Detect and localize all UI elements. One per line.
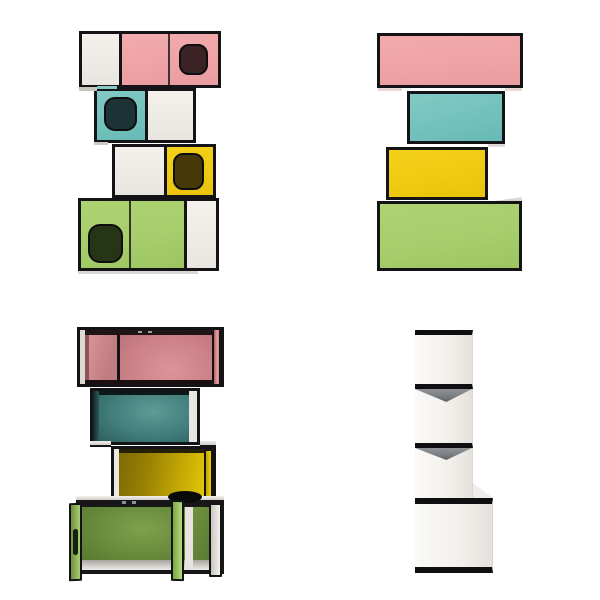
interior-ceiling (99, 391, 189, 395)
entry-hole-green (88, 224, 123, 263)
open-door-pink (212, 330, 221, 384)
open-tier-pink (77, 327, 224, 387)
open-door-yellow (204, 449, 213, 503)
entry-hole-pink (179, 44, 208, 75)
back-tier-green (377, 201, 522, 271)
depth-sliver (94, 142, 108, 145)
panel-white (187, 201, 216, 268)
front-tier-pink (79, 31, 221, 88)
panel-white (148, 91, 193, 140)
door-seam (168, 34, 170, 85)
entry-hole-teal (104, 97, 137, 131)
back-tier-teal (407, 91, 505, 144)
product-sheet (0, 0, 600, 600)
interior-floor-white (79, 560, 221, 570)
interior-yellow (119, 449, 204, 497)
entry-hole-yellow (173, 153, 204, 190)
front-tier-yellow (112, 144, 216, 198)
open-tier-green (76, 496, 224, 574)
underside-shadow-wedge (415, 448, 472, 460)
step-sliver (90, 441, 111, 447)
interior-ceiling (119, 449, 204, 453)
interior-pink-left (85, 330, 117, 384)
bottom-box-top-face (473, 483, 493, 498)
hinge (122, 501, 126, 504)
front-tier-green (78, 198, 219, 271)
side-post-white (185, 507, 193, 570)
side-box-2 (415, 389, 473, 448)
bottom-band (76, 570, 224, 574)
side-box-1 (415, 330, 473, 389)
interior-pink-main (120, 330, 212, 384)
open-tier-yellow (111, 446, 216, 500)
open-door-green-mid (171, 500, 184, 581)
top-band (76, 500, 224, 507)
back-tier-yellow (386, 147, 488, 200)
front-tier-teal (94, 88, 196, 143)
door-hole (73, 529, 78, 555)
open-door-white-right (209, 503, 222, 577)
depth-sliver (79, 87, 97, 91)
side-box-3 (415, 448, 473, 498)
teal-top-sliver (97, 86, 117, 89)
open-door-edge (85, 330, 89, 384)
back-tier-pink (377, 33, 523, 88)
panel-white (82, 34, 119, 85)
hinge (148, 331, 152, 333)
side-box-bottom (415, 498, 493, 573)
side-post-white (189, 391, 197, 442)
interior-floor-edge (85, 380, 212, 384)
ground-shadow (78, 271, 198, 274)
open-door-green-left (69, 503, 82, 581)
open-tier-teal (90, 388, 200, 445)
hinge (138, 331, 142, 333)
panel-white (115, 147, 164, 195)
door-seam (129, 201, 131, 268)
interior-teal (99, 391, 189, 442)
hinge (132, 501, 136, 504)
underside-shadow-wedge (415, 389, 472, 402)
